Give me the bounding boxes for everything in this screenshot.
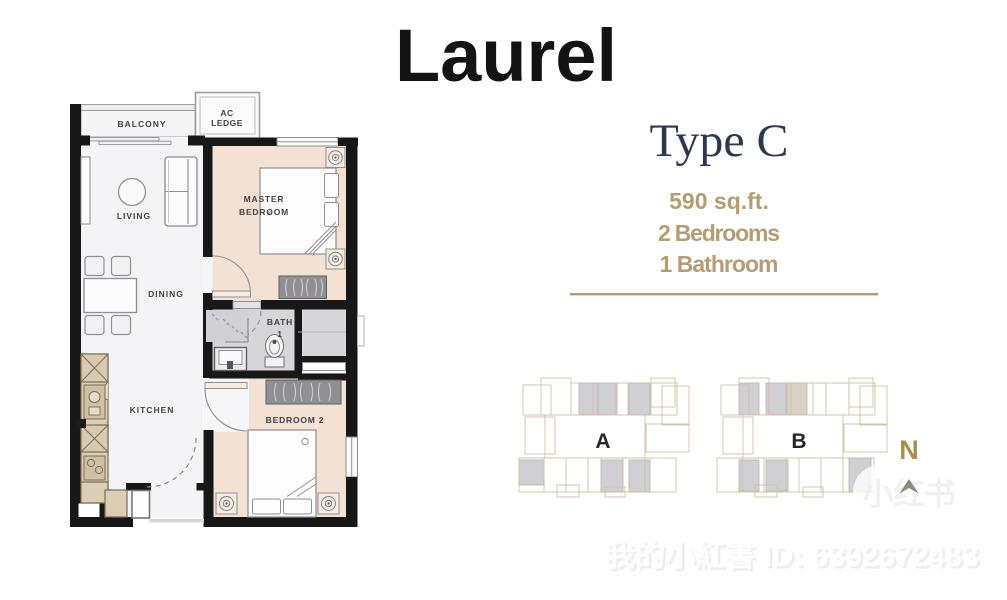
svg-text:MASTER: MASTER [244, 194, 285, 204]
svg-text:1 Bathroom: 1 Bathroom [660, 251, 779, 277]
svg-text:DINING: DINING [148, 289, 184, 299]
svg-text:LIVING: LIVING [117, 211, 151, 221]
svg-text:B: B [791, 430, 806, 453]
svg-text:1: 1 [277, 329, 283, 339]
svg-text:Laurel: Laurel [395, 14, 617, 97]
svg-text:N: N [899, 435, 919, 465]
svg-text:KITCHEN: KITCHEN [130, 405, 175, 415]
svg-text:Type C: Type C [650, 115, 789, 167]
svg-text:我的小紅書 ID: 6392672483: 我的小紅書 ID: 6392672483 [605, 540, 979, 573]
svg-text:BEDROOM 2: BEDROOM 2 [266, 415, 325, 425]
svg-text:BATH: BATH [267, 317, 293, 327]
svg-text:590 sq.ft.: 590 sq.ft. [669, 188, 769, 214]
svg-text:A: A [595, 430, 610, 453]
svg-text:2 Bedrooms: 2 Bedrooms [658, 220, 780, 246]
svg-text:LEDGE: LEDGE [211, 118, 243, 128]
svg-text:AC: AC [220, 108, 233, 118]
svg-text:BEDROOM: BEDROOM [239, 207, 289, 217]
svg-text:BALCONY: BALCONY [117, 119, 166, 129]
